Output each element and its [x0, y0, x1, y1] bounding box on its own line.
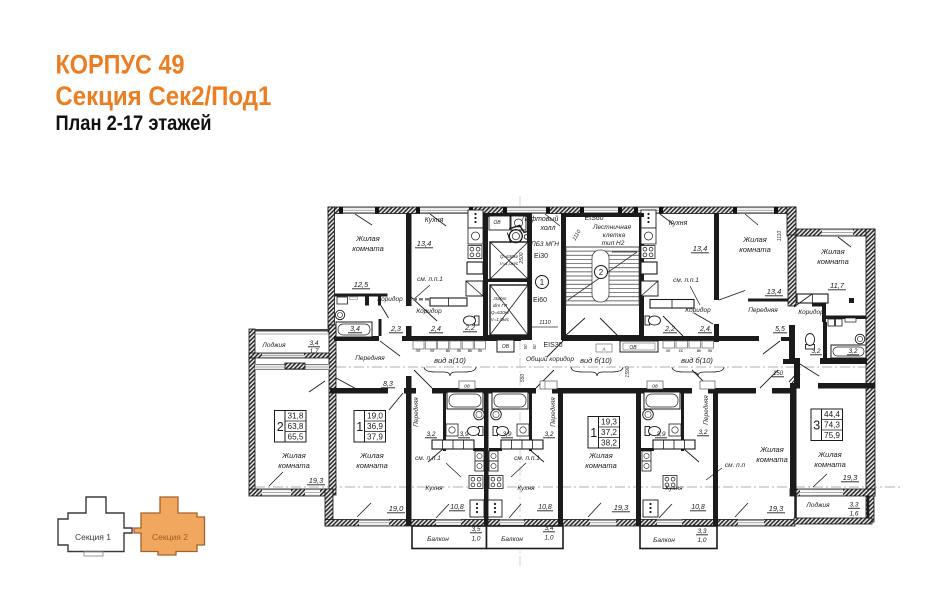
svg-text:Коридор: Коридор: [416, 307, 442, 315]
svg-text:ОВ: ОВ: [493, 220, 501, 226]
svg-text:13,4: 13,4: [417, 239, 432, 248]
svg-text:Ei30: Ei30: [534, 253, 548, 260]
svg-text:Секция Сек2/Под1: Секция Сек2/Под1: [55, 81, 271, 111]
svg-text:Кухня: Кухня: [665, 485, 683, 492]
svg-text:Жилая: Жилая: [281, 451, 305, 460]
svg-text:КОРПУС 49: КОРПУС 49: [56, 50, 185, 80]
svg-text:3,4: 3,4: [350, 326, 360, 333]
svg-text:19,3: 19,3: [601, 418, 617, 427]
svg-text:2,2: 2,2: [464, 325, 475, 332]
svg-text:вид а(10): вид а(10): [434, 356, 466, 365]
svg-text:комната: комната: [278, 461, 310, 470]
svg-text:холл: холл: [539, 225, 555, 232]
svg-text:3,9: 3,9: [502, 431, 511, 438]
svg-text:ов: ов: [652, 384, 658, 390]
svg-text:комната: комната: [356, 461, 388, 470]
svg-text:2: 2: [599, 268, 604, 277]
svg-text:Кухня: Кухня: [517, 485, 535, 492]
svg-text:Жилая: Жилая: [742, 235, 766, 244]
svg-text:3,2: 3,2: [811, 348, 820, 355]
svg-text:комната: комната: [585, 461, 617, 470]
svg-text:комната: комната: [352, 244, 384, 253]
svg-text:клетка: клетка: [603, 232, 626, 239]
svg-text:19,3: 19,3: [843, 473, 858, 482]
svg-text:Жилая: Жилая: [355, 234, 379, 243]
svg-text:1,0: 1,0: [697, 537, 706, 544]
svg-text:2,4: 2,4: [430, 326, 441, 333]
svg-text:8,3: 8,3: [383, 381, 393, 388]
svg-text:2,4: 2,4: [699, 326, 710, 333]
svg-text:63,8: 63,8: [288, 422, 304, 431]
svg-text:1,7: 1,7: [309, 348, 318, 355]
svg-text:3,2: 3,2: [544, 431, 553, 438]
svg-text:Секция 2: Секция 2: [152, 532, 188, 542]
svg-text:1: 1: [590, 426, 597, 440]
svg-text:2,2: 2,2: [664, 326, 675, 333]
svg-text:Жилая: Жилая: [759, 445, 783, 454]
svg-text:3,3: 3,3: [697, 528, 706, 535]
svg-text:Ei60: Ei60: [533, 297, 547, 304]
svg-text:36,9: 36,9: [367, 422, 383, 431]
svg-text:ЕIS60: ЕIS60: [584, 215, 603, 222]
svg-text:вид б(10): вид б(10): [580, 356, 612, 365]
svg-text:3,9: 3,9: [656, 431, 665, 438]
svg-text:сс: сс: [679, 348, 684, 353]
svg-text:31,8: 31,8: [288, 412, 304, 421]
svg-text:12,5: 12,5: [354, 280, 369, 289]
svg-text:13,4: 13,4: [767, 287, 782, 296]
svg-text:2,3: 2,3: [390, 326, 401, 333]
svg-text:Кухня: Кухня: [669, 220, 688, 227]
svg-text:Передняя: Передняя: [702, 395, 710, 425]
svg-text:Жилая: Жилая: [820, 247, 844, 256]
svg-text:эп: эп: [416, 348, 421, 353]
svg-text:Передняя: Передняя: [549, 397, 557, 427]
svg-text:Q=630кг: Q=630кг: [491, 310, 510, 315]
svg-text:ОВ: ОВ: [629, 345, 637, 351]
svg-text:1110: 1110: [539, 320, 551, 326]
svg-text:50: 50: [523, 344, 528, 350]
svg-text:Балкон: Балкон: [653, 537, 675, 544]
svg-text:3,3: 3,3: [849, 502, 858, 509]
svg-text:ПБ3 МГН: ПБ3 МГН: [531, 241, 559, 248]
svg-text:Балкон: Балкон: [501, 536, 523, 543]
svg-text:Кухня: Кухня: [425, 217, 444, 224]
svg-text:dim ГП: dim ГП: [493, 303, 508, 308]
svg-text:19,0: 19,0: [367, 412, 383, 421]
svg-text:ов: ов: [464, 384, 470, 390]
svg-text:3,5: 3,5: [471, 526, 480, 533]
svg-text:3,9: 3,9: [459, 431, 468, 438]
svg-text:Жилая: Жилая: [359, 451, 383, 460]
svg-text:Коридор: Коридор: [377, 295, 403, 303]
svg-text:Жилая: Жилая: [817, 450, 841, 459]
svg-text:1590: 1590: [625, 366, 631, 377]
svg-text:V=1,0м/с: V=1,0м/с: [500, 261, 519, 266]
svg-text:13,4: 13,4: [693, 244, 708, 253]
svg-text:10,8: 10,8: [691, 504, 705, 511]
svg-text:Общий коридор: Общий коридор: [526, 355, 574, 363]
svg-text:ЕIS30: ЕIS30: [543, 342, 562, 349]
svg-text:1: 1: [356, 420, 363, 434]
svg-text:План 2-17 этажей: План 2-17 этажей: [56, 112, 212, 135]
svg-text:см. п.п.1: см. п.п.1: [514, 455, 540, 462]
svg-text:19,3: 19,3: [769, 504, 784, 513]
svg-text:1,0: 1,0: [471, 536, 480, 543]
svg-text:V=1,0м/с: V=1,0м/с: [491, 317, 510, 322]
svg-text:50: 50: [532, 344, 537, 350]
svg-text:38,2: 38,2: [601, 439, 617, 448]
svg-text:74,3: 74,3: [824, 421, 840, 430]
svg-text:19,3: 19,3: [309, 476, 324, 485]
svg-text:Коридор: Коридор: [685, 306, 711, 314]
svg-text:Передняя: Передняя: [355, 354, 385, 362]
svg-text:см. п.п.1: см. п.п.1: [673, 277, 699, 284]
svg-text:ОВ: ОВ: [502, 344, 510, 350]
svg-text:3: 3: [813, 418, 820, 432]
svg-text:А: А: [601, 347, 605, 352]
svg-text:Лифтовый: Лифтовый: [521, 215, 559, 223]
svg-text:Секция 1: Секция 1: [75, 532, 111, 542]
svg-text:11,7: 11,7: [830, 281, 845, 290]
svg-text:3,4: 3,4: [309, 340, 318, 347]
svg-text:3,4: 3,4: [544, 525, 553, 532]
svg-text:3,2: 3,2: [848, 348, 857, 355]
svg-text:Коридор: Коридор: [798, 308, 824, 316]
svg-text:Q=630кг: Q=630кг: [500, 254, 519, 259]
svg-text:Лифт: Лифт: [492, 296, 506, 301]
svg-text:см. п.п.1: см. п.п.1: [415, 455, 441, 462]
svg-text:1110: 1110: [777, 231, 783, 242]
svg-text:150: 150: [773, 371, 784, 377]
svg-text:10,8: 10,8: [538, 504, 552, 511]
svg-text:1,0: 1,0: [544, 535, 553, 542]
svg-text:65,5: 65,5: [288, 433, 304, 442]
svg-text:2: 2: [277, 420, 284, 434]
svg-text:37,9: 37,9: [367, 433, 383, 442]
svg-text:Передняя: Передняя: [412, 397, 420, 427]
svg-text:Балкон: Балкон: [427, 536, 449, 543]
svg-text:эп: эп: [666, 348, 671, 353]
svg-text:44,4: 44,4: [824, 410, 840, 419]
svg-text:комната: комната: [756, 455, 788, 464]
svg-text:19,0: 19,0: [389, 504, 404, 513]
svg-text:Лоджия: Лоджия: [261, 341, 286, 349]
svg-text:Кухня: Кухня: [425, 485, 443, 492]
svg-text:эп: эп: [430, 348, 435, 353]
svg-text:75,9: 75,9: [824, 431, 840, 440]
svg-text:2500: 2500: [519, 252, 525, 264]
svg-text:Лестничная: Лестничная: [592, 224, 631, 231]
svg-text:Передняя: Передняя: [748, 306, 778, 314]
svg-text:см. п.п.1: см. п.п.1: [417, 276, 443, 283]
svg-text:10,8: 10,8: [450, 504, 464, 511]
svg-text:550: 550: [520, 374, 526, 383]
svg-text:3,2: 3,2: [426, 431, 435, 438]
svg-text:вид б(10): вид б(10): [681, 356, 713, 365]
svg-text:1,6: 1,6: [849, 511, 858, 518]
svg-text:3,2: 3,2: [698, 429, 707, 436]
svg-text:37,2: 37,2: [601, 428, 617, 437]
svg-text:Жилая: Жилая: [588, 451, 612, 460]
svg-text:комната: комната: [739, 245, 771, 254]
svg-text:5,5: 5,5: [775, 326, 785, 333]
svg-text:Лоджия: Лоджия: [805, 501, 830, 509]
svg-text:см. п.п: см. п.п: [725, 462, 746, 469]
svg-text:комната: комната: [817, 257, 849, 266]
svg-text:тип Н2: тип Н2: [602, 240, 625, 247]
svg-text:комната: комната: [814, 460, 846, 469]
svg-text:1: 1: [540, 278, 545, 287]
svg-text:19,3: 19,3: [614, 503, 629, 512]
